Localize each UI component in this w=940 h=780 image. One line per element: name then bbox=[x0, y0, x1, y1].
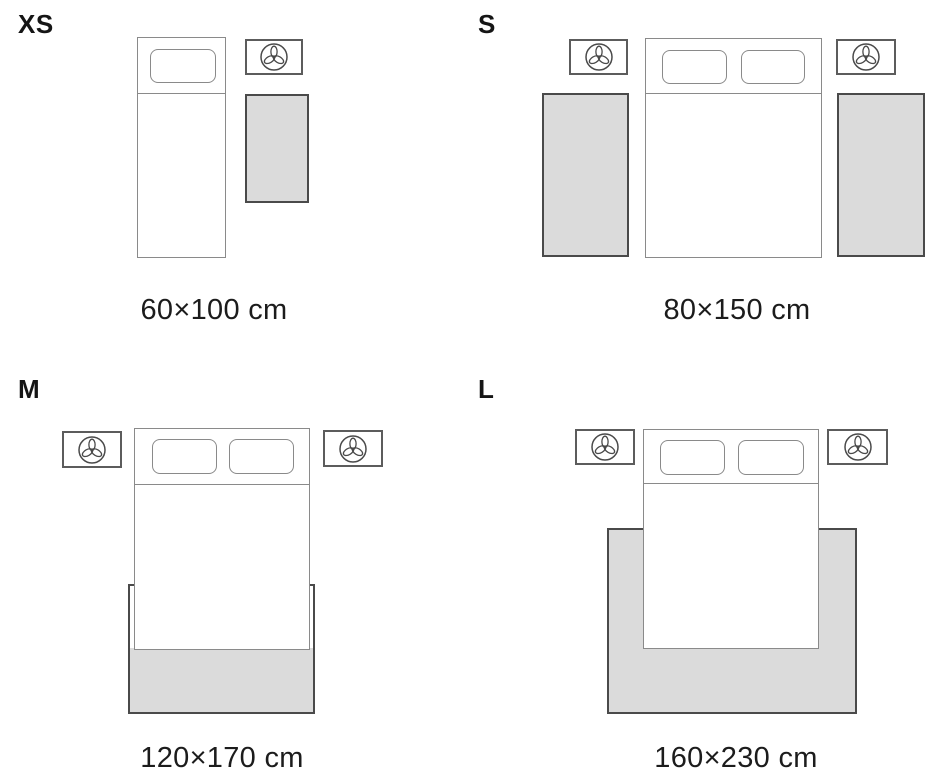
size-label-m: M bbox=[18, 376, 40, 402]
nightstand-left bbox=[569, 39, 628, 75]
rug-s-left bbox=[542, 93, 629, 257]
rug-m-exposed-part bbox=[130, 648, 313, 712]
dimensions-m: 120×170 cm bbox=[72, 744, 372, 773]
nightstand-left bbox=[575, 429, 635, 465]
bed-headboard bbox=[138, 38, 225, 94]
plant-trefoil-icon bbox=[851, 42, 881, 72]
size-label-l: L bbox=[478, 376, 494, 402]
size-label-s: S bbox=[478, 11, 496, 37]
pillow bbox=[152, 439, 217, 474]
bed-headboard bbox=[644, 430, 818, 484]
pillow bbox=[229, 439, 294, 474]
plant-trefoil-icon bbox=[590, 432, 620, 462]
double-bed bbox=[134, 428, 310, 650]
dimensions-l: 160×230 cm bbox=[586, 744, 886, 773]
bed-headboard bbox=[135, 429, 309, 485]
single-bed bbox=[137, 37, 226, 258]
dimensions-xs: 60×100 cm bbox=[64, 296, 364, 325]
nightstand-right bbox=[827, 429, 888, 465]
rug-size-guide: XS 60×100 cm S bbox=[0, 0, 940, 780]
plant-trefoil-icon bbox=[584, 42, 614, 72]
plant-trefoil-icon bbox=[338, 434, 368, 464]
dimensions-s: 80×150 cm bbox=[587, 296, 887, 325]
rug-s-right bbox=[837, 93, 925, 257]
rug-xs bbox=[245, 94, 309, 203]
nightstand-right bbox=[323, 430, 383, 467]
plant-trefoil-icon bbox=[259, 42, 289, 72]
nightstand-left bbox=[62, 431, 122, 468]
plant-trefoil-icon bbox=[843, 432, 873, 462]
double-bed bbox=[643, 429, 819, 649]
pillow bbox=[741, 50, 805, 84]
bed-headboard bbox=[646, 39, 821, 94]
pillow bbox=[150, 49, 216, 83]
double-bed bbox=[645, 38, 822, 258]
pillow bbox=[738, 440, 804, 475]
plant-trefoil-icon bbox=[77, 435, 107, 465]
nightstand bbox=[245, 39, 303, 75]
nightstand-right bbox=[836, 39, 896, 75]
pillow bbox=[660, 440, 725, 475]
pillow bbox=[662, 50, 727, 84]
size-label-xs: XS bbox=[18, 11, 54, 37]
